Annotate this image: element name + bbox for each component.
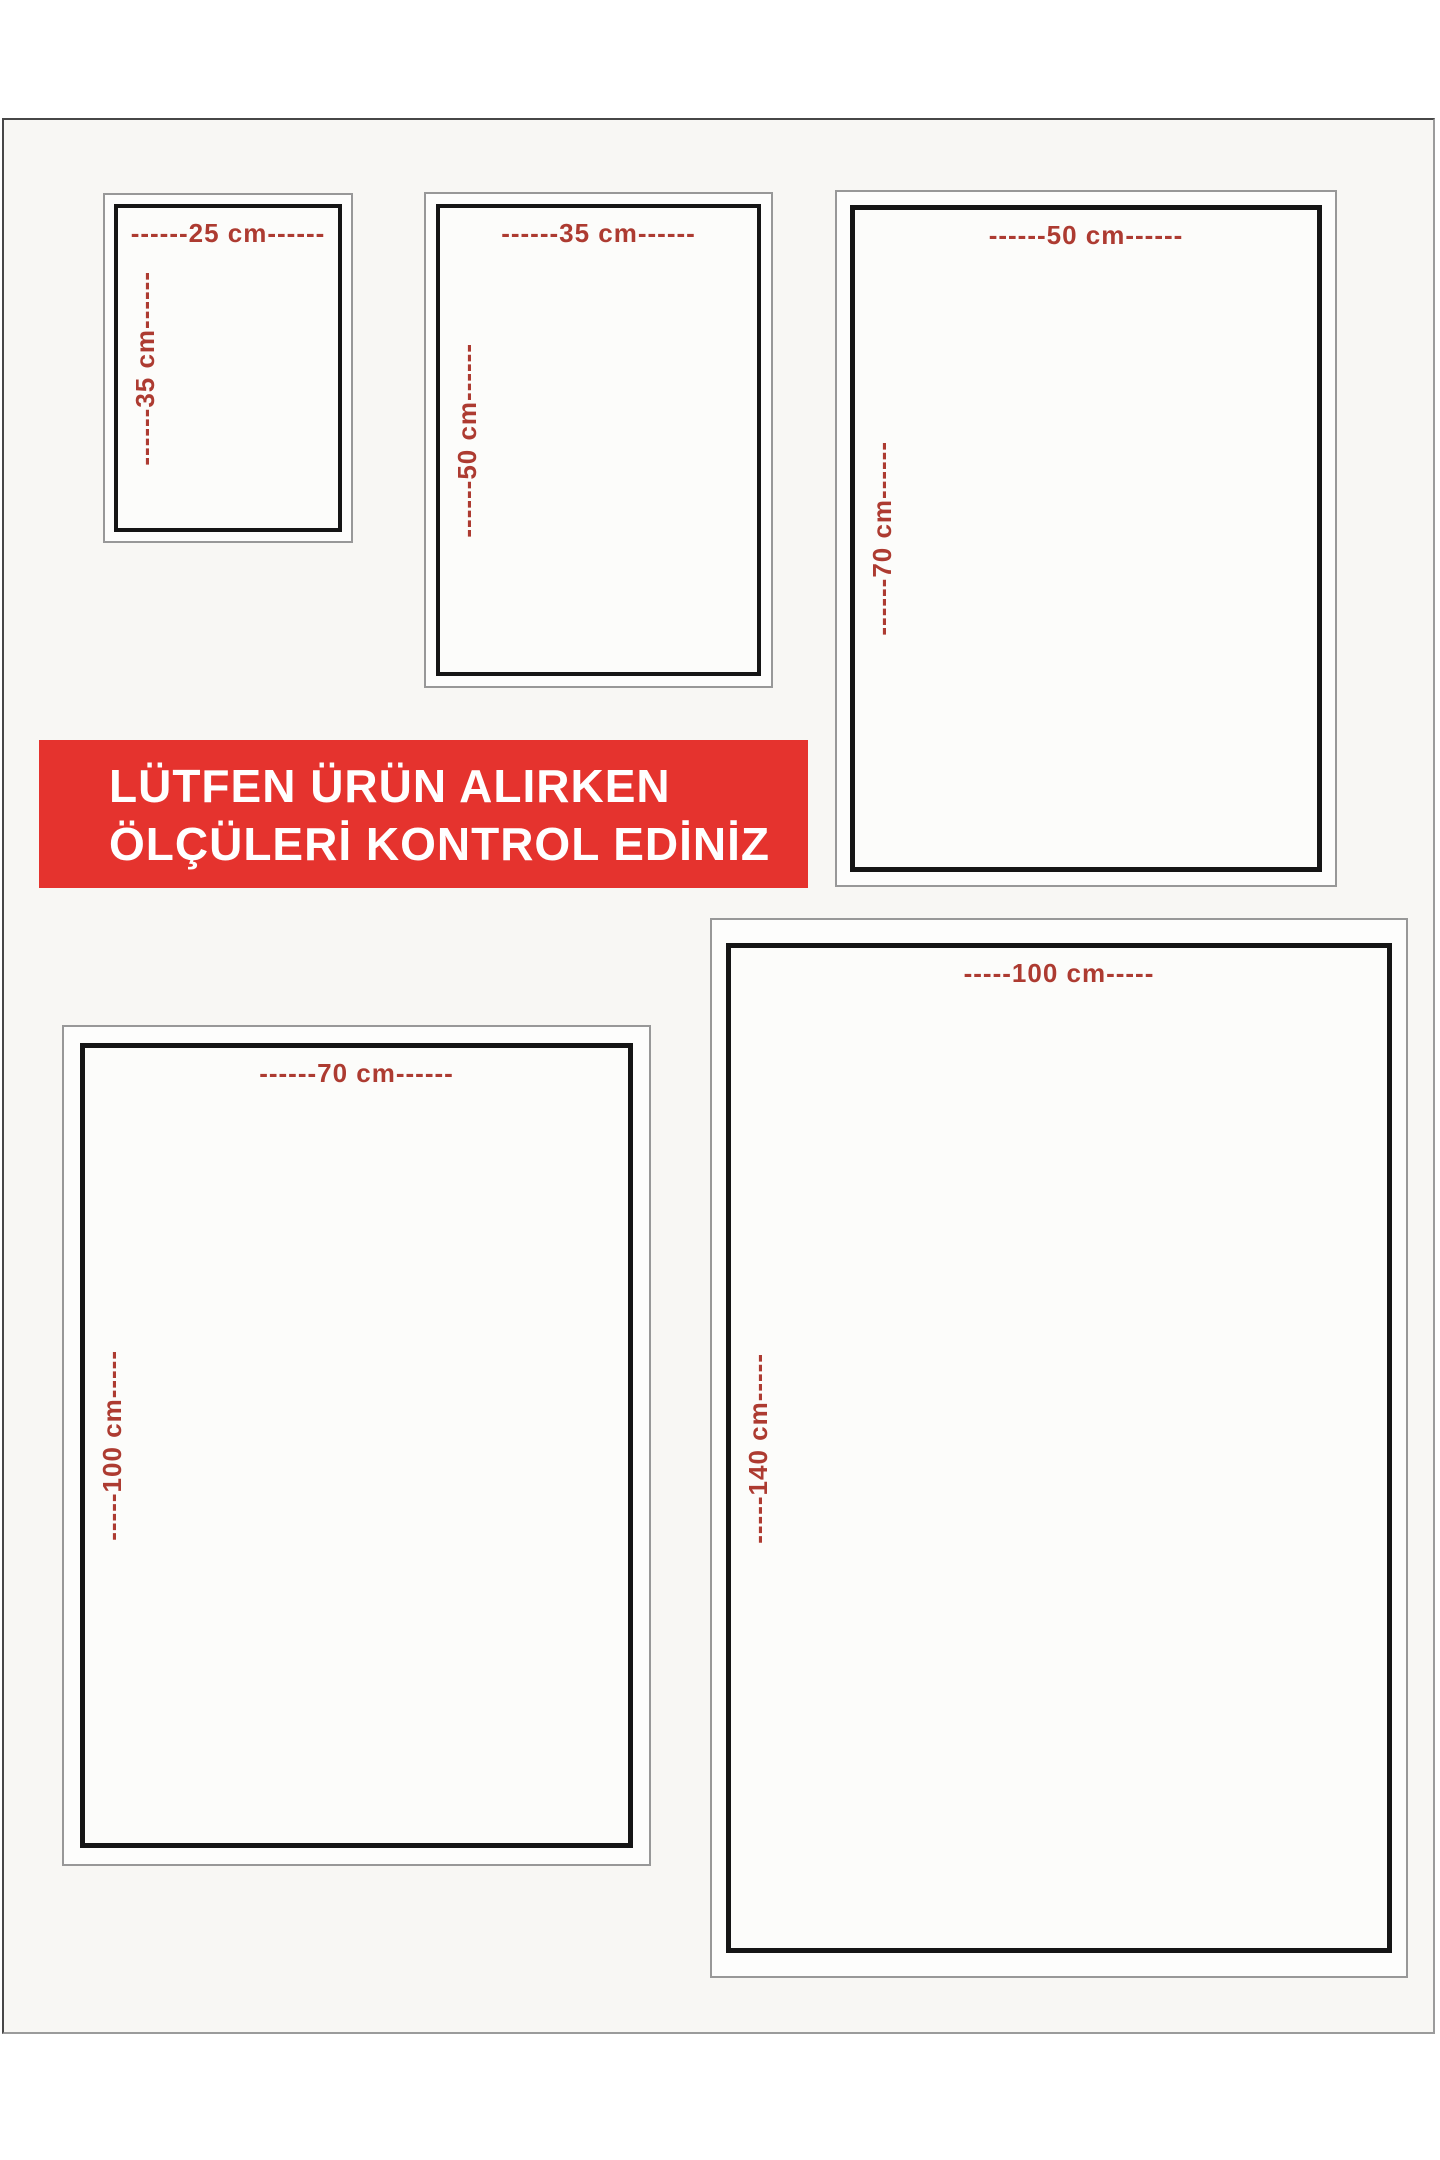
width-dimension-label: ------70 cm------ [85, 1058, 628, 1089]
height-dimension-label: ------70 cm------ [867, 441, 898, 636]
size-card-25x35: ------25 cm------ ------35 cm------ [103, 193, 353, 543]
size-card-35x50: ------35 cm------ ------50 cm------ [424, 192, 773, 688]
warning-banner-line-1: LÜTFEN ÜRÜN ALIRKEN [109, 757, 808, 815]
size-card-70x100-inner-border: ------70 cm------ -----100 cm----- [80, 1043, 633, 1848]
warning-banner-line-2: ÖLÇÜLERİ KONTROL EDİNİZ [109, 815, 808, 873]
height-dimension-label: ------35 cm------ [130, 271, 161, 466]
size-card-100x140-inner-border: -----100 cm----- -----140 cm----- [726, 943, 1392, 1953]
size-card-100x140: -----100 cm----- -----140 cm----- [710, 918, 1408, 1978]
size-card-70x100: ------70 cm------ -----100 cm----- [62, 1025, 651, 1866]
height-dimension-label: -----100 cm----- [97, 1350, 128, 1541]
height-dimension-wrap: ------50 cm------ [452, 208, 483, 672]
warning-banner: LÜTFEN ÜRÜN ALIRKEN ÖLÇÜLERİ KONTROL EDİ… [39, 740, 808, 888]
size-card-50x70-inner-border: ------50 cm------ ------70 cm------ [850, 205, 1322, 872]
height-dimension-label: ------50 cm------ [452, 343, 483, 538]
height-dimension-label: -----140 cm----- [743, 1353, 774, 1544]
width-dimension-label: ------50 cm------ [855, 220, 1317, 251]
width-dimension-label: ------35 cm------ [440, 218, 757, 249]
height-dimension-wrap: ------35 cm------ [130, 208, 161, 528]
size-card-35x50-inner-border: ------35 cm------ ------50 cm------ [436, 204, 761, 676]
size-card-25x35-inner-border: ------25 cm------ ------35 cm------ [114, 204, 342, 532]
size-chart-image: ------25 cm------ ------35 cm------ ----… [0, 0, 1440, 2160]
height-dimension-wrap: ------70 cm------ [867, 210, 898, 867]
height-dimension-wrap: -----100 cm----- [97, 1048, 128, 1843]
height-dimension-wrap: -----140 cm----- [743, 948, 774, 1948]
width-dimension-label: -----100 cm----- [731, 958, 1387, 989]
size-card-50x70: ------50 cm------ ------70 cm------ [835, 190, 1337, 887]
